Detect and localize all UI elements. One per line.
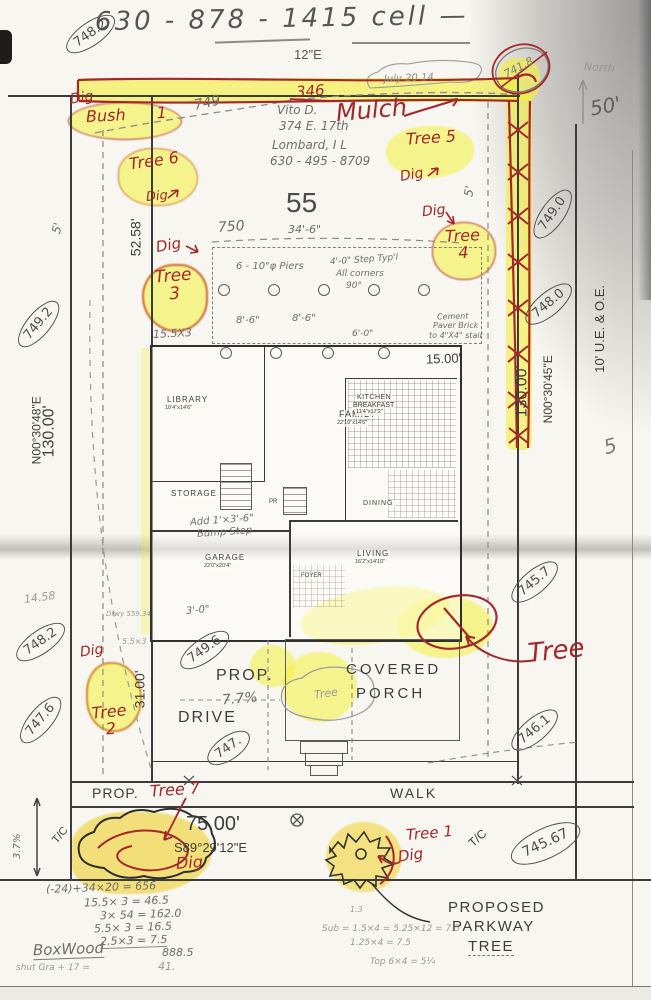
- lot-number: 55: [286, 188, 317, 217]
- grade-7-7: 7.7%: [221, 690, 258, 708]
- dim-8-6-b: 8'-6": [292, 314, 316, 325]
- ninety-deg-note: 90°: [346, 282, 362, 291]
- tree-label-big: Tree: [527, 635, 586, 668]
- slope-3-7: 3.7%: [13, 828, 24, 864]
- room-living-dim: 16'2"x14'10": [354, 560, 386, 566]
- bearing-south: S89°29'12"E: [174, 841, 247, 855]
- contour-750-label: 750: [218, 219, 246, 236]
- easement-label: 10' U.E. & O.E.: [593, 249, 607, 409]
- calc-left-result: 41.: [158, 961, 176, 973]
- fifty-feet-label: 50': [588, 93, 622, 119]
- calc-right-line-3: Top 6×4 = 5¼: [370, 958, 435, 967]
- drwy-note: Drwy 559.34: [106, 611, 151, 618]
- owner-phone: 630 - 495 - 8709: [270, 155, 370, 168]
- rebar-note: 12"E: [294, 48, 322, 62]
- prop-drive-label: PROP.: [216, 668, 274, 685]
- room-living: LIVING: [356, 550, 390, 558]
- room-family-dim: 22'10"x14'6": [336, 421, 368, 427]
- dim-3-0: 3'-0": [186, 605, 211, 618]
- covered-label: COVERED: [346, 662, 441, 678]
- boxwood-label: BoxWood: [33, 941, 105, 960]
- dim-15-5x3: 15.5X3: [153, 327, 193, 341]
- room-foyer: FOYER: [300, 573, 323, 579]
- swale-dashed-southeast: [428, 742, 580, 763]
- tree-label-arrow: [466, 636, 536, 661]
- mulch-arrow: [404, 99, 458, 116]
- dig-arrow-tree1: [378, 856, 400, 864]
- parkway-label: PARKWAY: [452, 919, 535, 935]
- dim-5-5x3: 5.5×3: [122, 638, 147, 646]
- tree3-label: Tree 3: [147, 266, 202, 306]
- room-library-dim: 10'4"x14'6": [164, 406, 193, 412]
- red-346-note: 346: [295, 83, 325, 101]
- proposed-label: PROPOSED: [448, 900, 545, 916]
- dig-label-tree1: Dig: [397, 846, 424, 865]
- tree-red-slash: [444, 608, 470, 638]
- room-dining: DINING: [362, 500, 395, 507]
- shrub-note: shut Gra + 17 =: [16, 964, 90, 973]
- cement-note-2: Paver Brick: [433, 322, 478, 330]
- dig-arrow-tree5: [428, 168, 438, 176]
- room-kitchen-dim: 11'4"x17'2": [355, 410, 384, 416]
- contour-750-line: [212, 238, 462, 243]
- parkway-tree-leader-line: [372, 884, 430, 922]
- calc-left-line-5: 2.5×3 = 7.5: [100, 934, 168, 949]
- room-garage-dim: 22'0"x20'4": [203, 564, 232, 570]
- phone-header: 630 - 878 - 1415 cell —: [95, 3, 469, 37]
- prop-walk-label: PROP.: [92, 786, 139, 801]
- room-pr: PR: [268, 499, 278, 505]
- cement-note-3: to 4"X4" stair: [429, 332, 483, 340]
- phone-underline-2: [352, 42, 470, 44]
- calc-right-line-1: Sub = 1.5×4 = 5.25×12 = 7.5: [322, 925, 460, 934]
- east-length: 130.00': [515, 351, 532, 431]
- dig-label-tree4: Dig: [421, 203, 446, 220]
- dim-6-0: 6'-0": [352, 330, 373, 339]
- parkway-dim-arrow: [34, 798, 40, 876]
- corners-note: All corners: [336, 270, 384, 279]
- drive-label: DRIVE: [178, 710, 237, 727]
- dim-15-00: 15.00': [426, 351, 461, 366]
- dim-52-58: 52.58': [129, 205, 144, 269]
- north-arrow: [579, 80, 587, 124]
- dig-arrow-tree6: [168, 190, 178, 198]
- room-kitchen: KITCHEN: [356, 394, 392, 401]
- tree2-label: Tree 2: [84, 702, 135, 740]
- bearing-east: N00°30'45"E: [542, 332, 555, 447]
- dig-label-tree2: Dig: [79, 642, 104, 660]
- owner-street: 374 E. 17th: [279, 120, 349, 133]
- curb-sketch-label: 1.3: [350, 906, 363, 914]
- scanned-site-plan: 630 - 878 - 1415 cell — 12"E July 20 14 …: [0, 0, 651, 1000]
- parkway-tree-label: TREE: [468, 939, 514, 956]
- dim-34-6: 34'-6": [288, 224, 321, 236]
- room-garage: GARAGE: [204, 554, 246, 562]
- dim-31-00: 31.00': [133, 657, 148, 721]
- dig-label-tree6: Dig: [145, 189, 168, 204]
- dig-label-topleft: Dig: [69, 89, 94, 107]
- room-storage: STORAGE: [170, 490, 218, 498]
- tree7-label: Tree 7: [149, 780, 200, 800]
- north-label: North: [584, 61, 615, 75]
- dig-arrow-tree4: [446, 212, 454, 224]
- west-length: 130.00': [42, 391, 59, 471]
- dig-label-tree7: Dig: [175, 854, 203, 873]
- owner-name: Vito D.: [277, 104, 317, 117]
- south-length: 75.00': [186, 814, 240, 835]
- tree4-label: Tree 4: [437, 227, 489, 263]
- piers-note: 6 - 10"φ Piers: [236, 262, 304, 273]
- benchmark-symbol: [291, 814, 303, 826]
- owner-city: Lombard, I L: [272, 139, 347, 152]
- walk-x-marks: [184, 776, 522, 785]
- calc-right-line-2: 1.25×4 = 7.5: [350, 939, 411, 948]
- dig-arrow-tree3: [186, 245, 198, 253]
- walk-label: WALK: [390, 786, 437, 801]
- dim-5ft-east: 5': [462, 185, 476, 198]
- porch-label: PORCH: [356, 686, 425, 702]
- room-library: LIBRARY: [166, 396, 209, 404]
- date-note: July 20 14: [384, 73, 434, 85]
- dim-8-6-a: 8'-6": [236, 316, 260, 327]
- calc-left-total: 888.5: [162, 947, 194, 959]
